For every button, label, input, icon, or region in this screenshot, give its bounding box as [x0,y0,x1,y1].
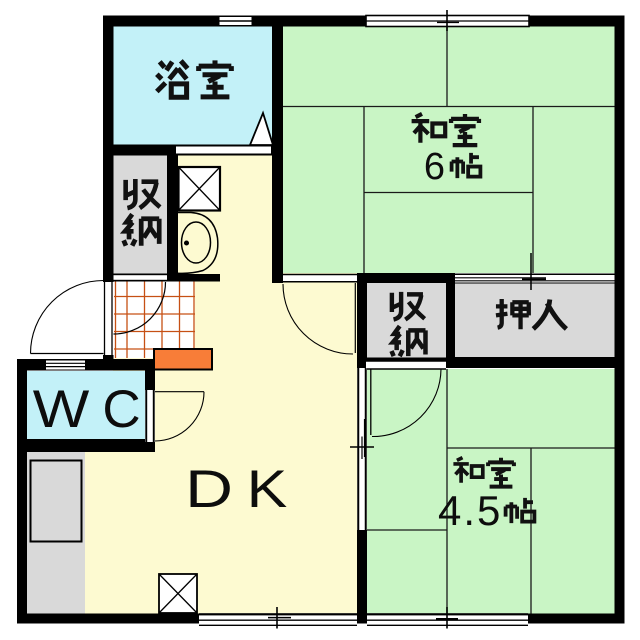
svg-text:6: 6 [424,146,445,188]
svg-text:W: W [33,379,90,438]
svg-text:K: K [247,460,288,519]
svg-text:D: D [185,459,233,518]
svg-text:C: C [102,380,140,439]
svg-text:4.5: 4.5 [438,487,502,534]
